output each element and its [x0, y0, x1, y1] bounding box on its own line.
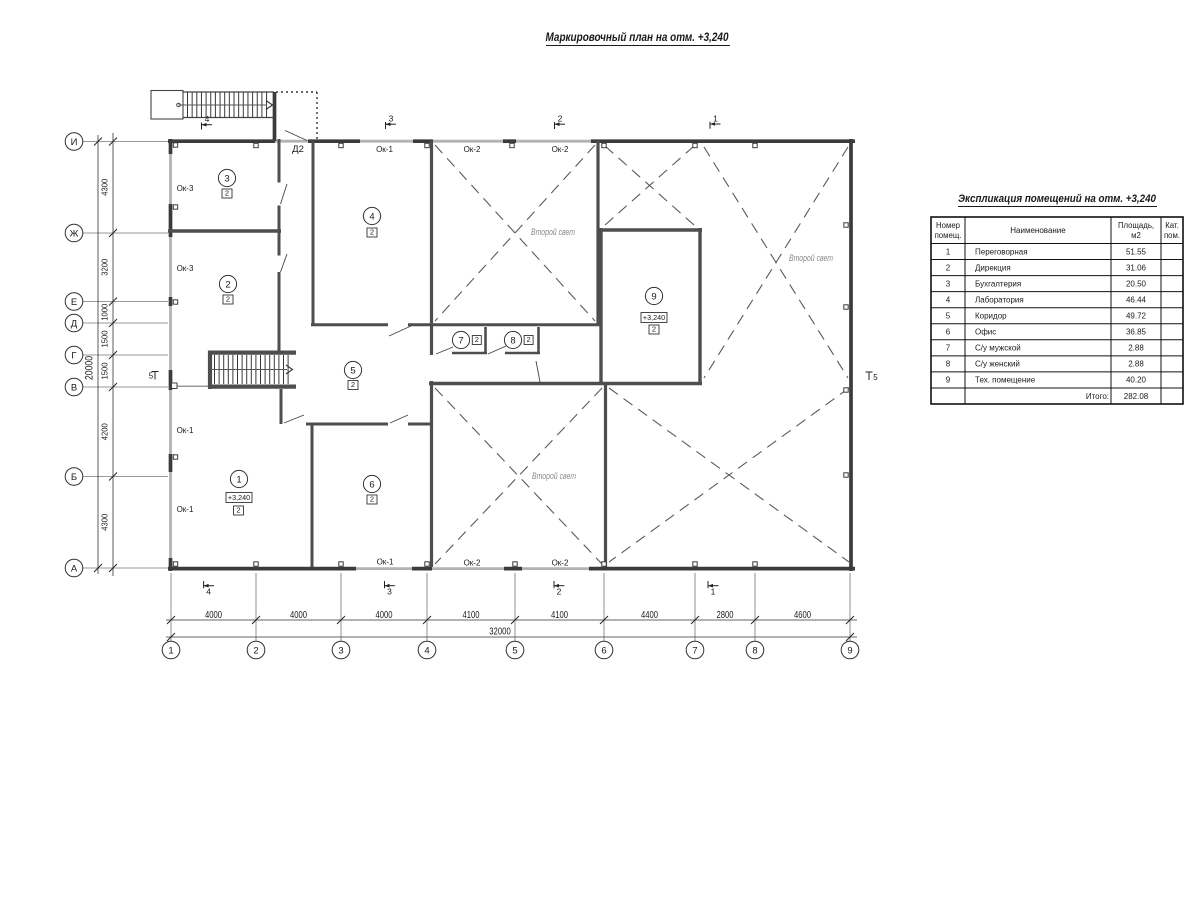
- svg-text:5: 5: [149, 372, 154, 381]
- svg-text:2: 2: [253, 645, 258, 656]
- svg-text:2: 2: [225, 188, 229, 197]
- svg-text:4100: 4100: [463, 610, 480, 621]
- svg-text:Б: Б: [71, 472, 77, 483]
- svg-text:Ок-1: Ок-1: [377, 558, 394, 567]
- svg-text:Второй свет: Второй свет: [532, 471, 576, 482]
- svg-text:7: 7: [458, 335, 463, 346]
- svg-text:1: 1: [946, 247, 951, 256]
- svg-text:4: 4: [206, 586, 211, 596]
- svg-text:Д: Д: [71, 318, 78, 329]
- svg-text:4100: 4100: [551, 610, 568, 621]
- svg-text:1: 1: [711, 586, 716, 596]
- svg-text:С/у женский: С/у женский: [975, 360, 1020, 369]
- svg-text:4: 4: [424, 645, 429, 656]
- svg-text:Офис: Офис: [975, 328, 996, 337]
- svg-text:Е: Е: [71, 297, 77, 308]
- svg-text:2.88: 2.88: [1128, 344, 1144, 353]
- svg-text:Кат.: Кат.: [1165, 221, 1179, 230]
- svg-text:В: В: [71, 382, 77, 393]
- svg-text:2: 2: [527, 335, 531, 344]
- svg-text:2: 2: [226, 294, 230, 303]
- svg-text:2: 2: [946, 263, 951, 272]
- svg-text:2: 2: [557, 586, 562, 596]
- svg-text:32000: 32000: [489, 627, 511, 638]
- svg-text:2: 2: [351, 380, 355, 389]
- svg-text:А: А: [71, 563, 78, 574]
- svg-text:+3,240: +3,240: [228, 493, 250, 502]
- svg-text:7: 7: [946, 344, 951, 353]
- svg-text:49.72: 49.72: [1126, 312, 1147, 321]
- svg-text:Экспликация помещений на отм.: Экспликация помещений на отм. +3,240: [958, 193, 1157, 205]
- svg-text:3: 3: [946, 279, 951, 288]
- svg-text:4000: 4000: [205, 610, 222, 621]
- svg-text:4400: 4400: [641, 610, 658, 621]
- svg-text:И: И: [71, 137, 78, 148]
- svg-text:1500: 1500: [100, 362, 110, 379]
- svg-text:8: 8: [946, 360, 951, 369]
- svg-text:282.08: 282.08: [1124, 392, 1149, 401]
- svg-text:Ок-2: Ок-2: [464, 145, 481, 154]
- svg-text:4300: 4300: [100, 514, 110, 531]
- svg-text:6: 6: [369, 479, 374, 490]
- svg-text:5: 5: [873, 373, 878, 382]
- svg-text:Тех. помещение: Тех. помещение: [975, 376, 1036, 385]
- svg-text:Площадь,: Площадь,: [1118, 221, 1154, 230]
- svg-text:Ок-3: Ок-3: [177, 184, 194, 193]
- svg-text:Коридор: Коридор: [975, 312, 1007, 321]
- svg-text:Г: Г: [71, 350, 76, 361]
- svg-text:Ок-2: Ок-2: [552, 145, 569, 154]
- svg-text:20.50: 20.50: [1126, 279, 1147, 288]
- svg-text:3200: 3200: [100, 259, 110, 276]
- svg-text:5: 5: [946, 312, 951, 321]
- svg-text:4: 4: [369, 211, 374, 222]
- svg-text:Второй свет: Второй свет: [531, 227, 575, 238]
- svg-text:8: 8: [752, 645, 757, 656]
- svg-text:5: 5: [512, 645, 517, 656]
- svg-text:1: 1: [168, 645, 173, 656]
- svg-text:Номер: Номер: [936, 221, 961, 230]
- svg-text:2: 2: [370, 227, 374, 236]
- svg-text:51.55: 51.55: [1126, 247, 1147, 256]
- svg-text:36.85: 36.85: [1126, 328, 1147, 337]
- svg-text:Ок-2: Ок-2: [464, 559, 481, 568]
- svg-text:2: 2: [558, 114, 563, 124]
- svg-text:3: 3: [338, 645, 343, 656]
- svg-text:С/у мужской: С/у мужской: [975, 344, 1021, 353]
- svg-text:2800: 2800: [717, 610, 734, 621]
- svg-text:31.06: 31.06: [1126, 263, 1147, 272]
- svg-text:7: 7: [692, 645, 697, 656]
- svg-text:9: 9: [946, 376, 951, 385]
- svg-text:помещ.: помещ.: [935, 231, 962, 240]
- svg-text:6: 6: [946, 328, 951, 337]
- svg-text:+3,240: +3,240: [643, 313, 665, 322]
- svg-text:4300: 4300: [100, 179, 110, 196]
- svg-text:Ок-1: Ок-1: [177, 505, 194, 514]
- svg-text:Наименование: Наименование: [1010, 226, 1066, 235]
- svg-text:4000: 4000: [376, 610, 393, 621]
- svg-text:пом.: пом.: [1164, 231, 1180, 240]
- svg-text:9: 9: [847, 645, 852, 656]
- svg-text:4: 4: [946, 295, 951, 304]
- svg-text:4600: 4600: [794, 610, 811, 621]
- svg-text:2: 2: [225, 279, 230, 290]
- svg-text:Ок-1: Ок-1: [177, 426, 194, 435]
- svg-text:Ж: Ж: [70, 228, 79, 239]
- svg-text:Ок-2: Ок-2: [552, 559, 569, 568]
- svg-text:20000: 20000: [84, 356, 96, 380]
- svg-text:Дирекция: Дирекция: [975, 263, 1011, 272]
- svg-text:2: 2: [652, 324, 656, 333]
- svg-text:4: 4: [205, 114, 210, 124]
- svg-text:3: 3: [389, 114, 394, 124]
- svg-text:3: 3: [224, 173, 229, 184]
- svg-text:4000: 4000: [290, 610, 307, 621]
- svg-text:Переговорная: Переговорная: [975, 247, 1028, 256]
- svg-text:2: 2: [236, 505, 240, 514]
- svg-text:2: 2: [475, 335, 479, 344]
- svg-text:2: 2: [370, 494, 374, 503]
- svg-text:Бухгалтерия: Бухгалтерия: [975, 279, 1021, 288]
- svg-text:Лаборатория: Лаборатория: [975, 295, 1024, 304]
- svg-text:2.88: 2.88: [1128, 360, 1144, 369]
- svg-text:1: 1: [236, 474, 241, 485]
- svg-text:1: 1: [713, 113, 718, 123]
- svg-text:4200: 4200: [100, 423, 110, 440]
- svg-text:5: 5: [350, 365, 355, 376]
- svg-text:8: 8: [510, 335, 515, 346]
- svg-text:40.20: 40.20: [1126, 376, 1147, 385]
- svg-text:6: 6: [601, 645, 606, 656]
- svg-text:3: 3: [387, 586, 392, 596]
- svg-text:1500: 1500: [100, 330, 110, 347]
- svg-text:9: 9: [651, 291, 656, 302]
- svg-text:Ок-3: Ок-3: [177, 264, 194, 273]
- svg-text:46.44: 46.44: [1126, 295, 1147, 304]
- svg-text:Д2: Д2: [292, 144, 304, 155]
- svg-text:Ок-1: Ок-1: [376, 145, 393, 154]
- svg-text:м2: м2: [1131, 231, 1141, 240]
- svg-text:Итого:: Итого:: [1086, 392, 1109, 401]
- svg-text:1000: 1000: [100, 304, 110, 321]
- svg-text:Второй свет: Второй свет: [789, 253, 833, 264]
- svg-text:Маркировочный план на отм. +3,: Маркировочный план на отм. +3,240: [546, 30, 729, 44]
